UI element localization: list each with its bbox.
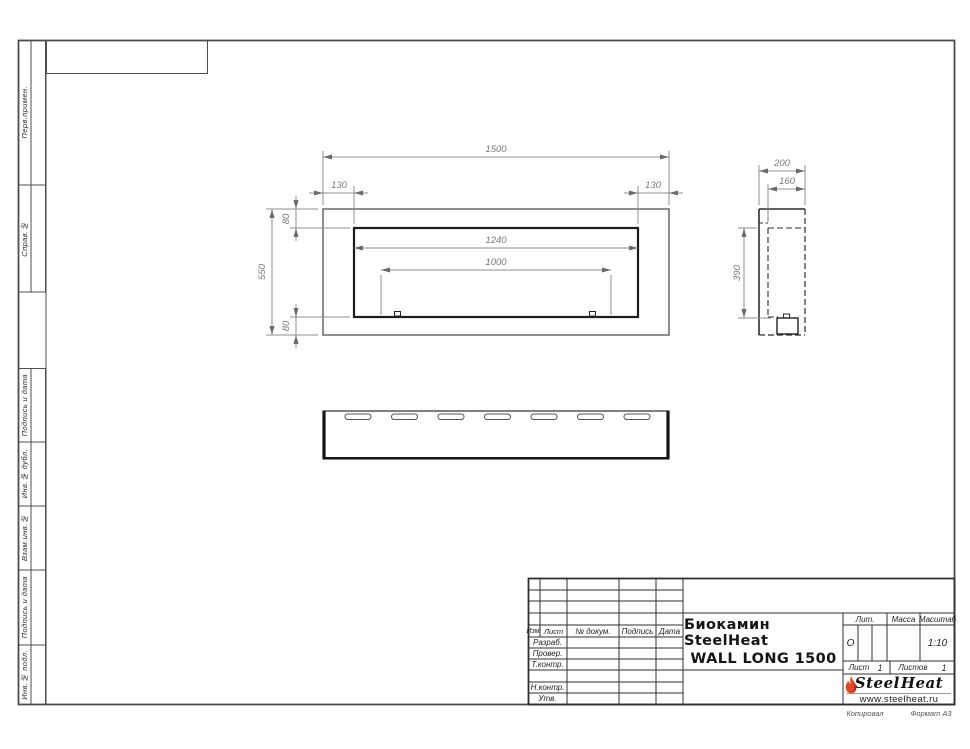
scale-value: 1:10 (920, 625, 955, 661)
col-date: Дата (656, 625, 683, 637)
mass-label: Масса (887, 613, 920, 625)
logo-word-steel: Steel (855, 674, 900, 692)
sheet-frame (19, 40, 955, 705)
col-izm: Изм. (528, 625, 540, 637)
steelheat-logo: Steel Heat www.steelheat.ru (844, 675, 954, 704)
dim-200: 200 (773, 158, 791, 169)
sidebar-label-sprav-no: Справ.№ (18, 185, 31, 292)
front-dimensions (266, 151, 683, 348)
sidebar-label-perv-primen: Перв.примен. (18, 40, 31, 185)
footer-copied: Копировал (830, 707, 900, 719)
sidebar-label-podpis-data-2: Подпись и дата (18, 570, 31, 645)
burner-tab-right (590, 312, 596, 317)
col-list: Лист (540, 625, 567, 637)
sidebar-label-inv-dubl: Инв.№ дубл. (18, 442, 31, 506)
footer-format: Формат А3 (900, 707, 962, 719)
flame-icon (844, 675, 858, 694)
document-title-line1: Биокамин SteelHeat (684, 617, 843, 649)
lit-label: Лит. (843, 613, 887, 625)
lit-value: О (843, 625, 858, 661)
sheets-total-label: Листов (892, 661, 934, 674)
side-burner-box (777, 318, 798, 334)
dim-390: 390 (732, 264, 743, 281)
dim-550: 550 (257, 263, 268, 280)
bottom-view (323, 411, 669, 459)
document-title: Биокамин SteelHeat WALL LONG 1500 (684, 613, 843, 670)
sidebar-label-vzam-inv: Взам.инв.№ (18, 506, 31, 570)
col-doc-no: № докум. (567, 625, 619, 637)
front-view (323, 209, 669, 335)
top-left-stamp-box (47, 41, 208, 74)
vent-slots (345, 414, 650, 420)
sheet-label: Лист (845, 661, 873, 674)
role-tech-control: Т.контр. (528, 659, 567, 670)
logo-word-heat: Heat (901, 674, 943, 692)
logo-website: www.steelheat.ru (847, 693, 951, 705)
drawing-sheet: 1500 130 130 80 550 80 1240 1000 (0, 0, 970, 749)
sidebar-label-podpis-data-1: Подпись и дата (18, 368, 31, 442)
document-title-line2: WALL LONG 1500 (690, 651, 836, 667)
dim-130-right: 130 (645, 180, 662, 191)
side-dimensions (738, 165, 805, 318)
sheet-value: 1 (872, 661, 888, 674)
role-developed: Разраб. (528, 637, 567, 648)
dim-80-bottom: 80 (281, 320, 292, 331)
dim-1240: 1240 (485, 235, 507, 246)
front-dimension-labels: 1500 130 130 80 550 80 1240 1000 (257, 144, 662, 331)
dim-80-top: 80 (281, 213, 292, 224)
burner-tab-left (395, 312, 401, 317)
dim-1500: 1500 (485, 144, 507, 155)
col-signature: Подпись (619, 625, 656, 637)
scale-label: Масштаб (920, 613, 955, 625)
dim-130-left: 130 (331, 180, 348, 191)
side-view (759, 209, 805, 335)
role-approved: Утв. (528, 693, 567, 704)
dim-160: 160 (779, 176, 796, 187)
sidebar-label-inv-podl: Инв.№ подл. (18, 645, 31, 705)
side-dimension-labels: 200 160 390 (732, 158, 796, 281)
role-norm-control: Н.контр. (528, 682, 567, 693)
mass-value (887, 625, 920, 661)
role-checked: Провер. (528, 648, 567, 659)
dim-1000: 1000 (485, 257, 507, 268)
sheets-total-value: 1 (936, 661, 952, 674)
